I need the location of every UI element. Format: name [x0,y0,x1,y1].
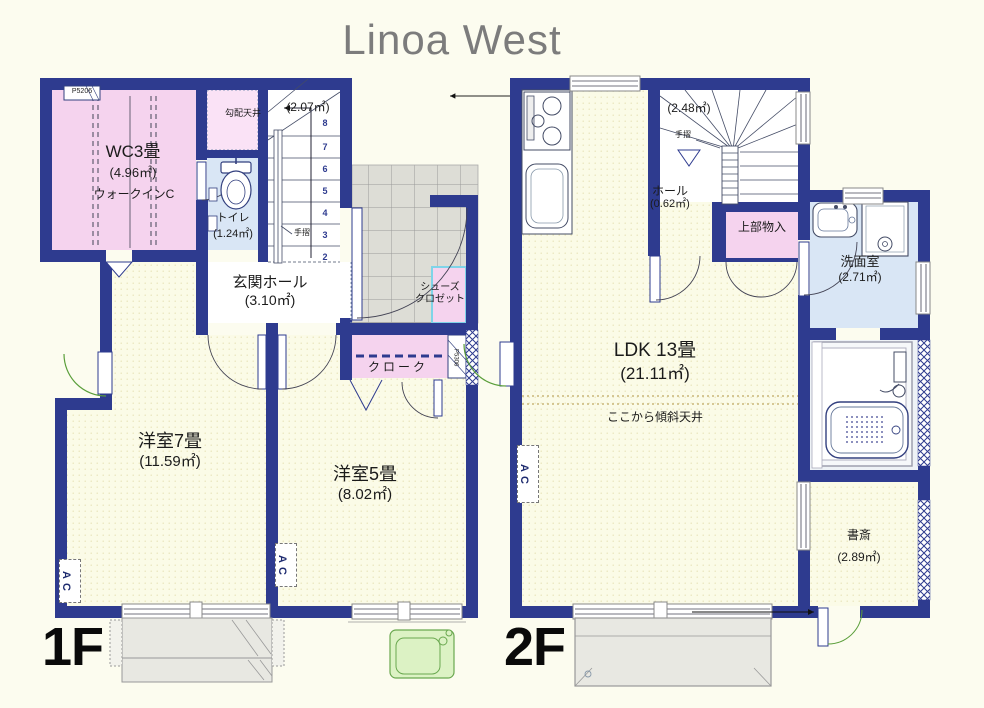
room7-name: 洋室7畳 [108,431,232,451]
upper-storage-label: 上部物入 [724,221,800,234]
washroom-area: (2.71㎡) [818,271,902,284]
room7-area: (11.59㎡) [108,454,232,471]
room7-mid [112,335,266,410]
cloak-label: クローク [350,361,446,374]
study-door-leaf [818,608,828,646]
wic-area: (4.96㎡) [83,166,183,181]
bathtub-icon [826,402,908,458]
step-number: 6 [317,164,333,174]
wic-name: WC3畳 [83,142,183,161]
hall2-area: (0.62㎡) [650,198,714,210]
room7-door-leaf [258,335,266,389]
room7-upper [112,262,196,335]
toilet-door-leaf [197,162,206,200]
handrail-label-2f: 手摺 [672,131,694,140]
toilet-name: トイレ [206,212,260,224]
step-number: 5 [317,186,333,196]
washroom-door-leaf [799,242,809,296]
washbasin-icon [813,203,857,237]
stairs-2f-handrail [722,146,738,204]
ac-marker-1f-right: AC [275,543,297,587]
handrail-label-1f: 手摺 [291,229,313,238]
floorplan-canvas: Linoa West P5206 WC3畳 (4.96㎡) ウォークインC 勾配… [0,0,984,708]
study-door-arc [828,610,862,644]
stairs1-area: (2.07㎡) [276,101,340,114]
bath-unit [812,342,912,468]
floor2-label: 2F [504,617,565,677]
hall2-name: ホール [652,185,710,198]
outdoor-unit-icon [390,630,454,678]
stairs2-area: (2.48㎡) [657,102,721,115]
room5-area: (8.02㎡) [303,487,427,504]
sloped-ceiling-label: 勾配天井 [220,108,266,118]
post-label-right: P5306 [452,340,459,376]
room5-name: 洋室5畳 [303,464,427,484]
floor1-label: 1F [42,617,103,677]
shoes-closet-line1: シューズ [413,282,467,293]
kitchen-counter-icon [522,90,572,234]
balcony-2f [575,618,771,686]
ldk-name: LDK 13畳 [565,340,745,361]
room-upper-storage [726,212,798,258]
entrance-hall-name: 玄関ホール [203,275,337,292]
washroom-name: 洗面室 [818,255,902,270]
post-label-top: P5206 [64,88,100,96]
terrace-1f [110,618,284,682]
wall-hatch-1f [466,330,478,385]
study-name: 書斎 [816,529,902,542]
ac-marker-2f: AC [517,445,539,503]
ceiling-note: ここから傾斜天井 [565,411,745,424]
step-number: 4 [317,208,333,218]
side-door-leaf-2f [500,342,514,386]
step-number: 7 [317,142,333,152]
step-number: 3 [317,230,333,240]
entrance-hall-area: (3.10㎡) [203,293,337,309]
side-door-leaf-1f [98,352,112,394]
room-study [810,482,918,606]
sink-icon [526,164,568,228]
ac-marker-1f-left: AC [59,559,81,603]
washing-machine-icon [862,202,908,256]
wall-hatch-2f-a [918,340,930,466]
step-number: 2 [317,252,333,262]
room5-door-leaf [278,335,286,389]
ldk-area: (21.11㎡) [565,364,745,383]
page-title: Linoa West [252,16,652,63]
step-number: 8 [317,118,333,128]
cloak-door-leaf [434,380,442,416]
floorplan-drawing [0,0,984,708]
wic-sub: ウォークインC [75,188,193,201]
entrance-door-leaf [352,208,362,320]
toilet-area: (1.24㎡) [202,228,264,240]
room-sloped-ceiling [207,90,258,150]
shoes-closet-line2: クロゼット [413,294,467,305]
hall-door-leaf [650,256,660,302]
wall-hatch-2f-b [918,500,930,600]
study-area: (2.89㎡) [814,551,904,564]
